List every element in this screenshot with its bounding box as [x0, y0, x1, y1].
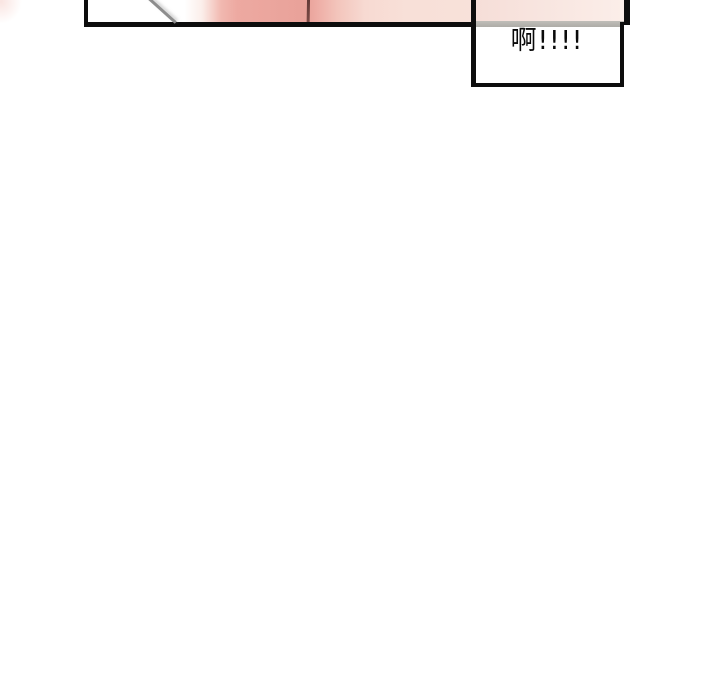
speech-box-right-border-lower: [620, 22, 624, 83]
diagonal-strand-line: [145, 0, 177, 24]
dark-edge-line: [307, 0, 311, 22]
speech-text: 啊!!!!: [476, 28, 618, 54]
corner-art-smudge: [0, 0, 22, 24]
panel-art-through-box: [476, 0, 624, 21]
comic-page: 啊!!!!: [0, 0, 720, 700]
speech-box: 啊!!!!: [471, 0, 624, 87]
speech-box-right-border-upper: [624, 0, 630, 25]
